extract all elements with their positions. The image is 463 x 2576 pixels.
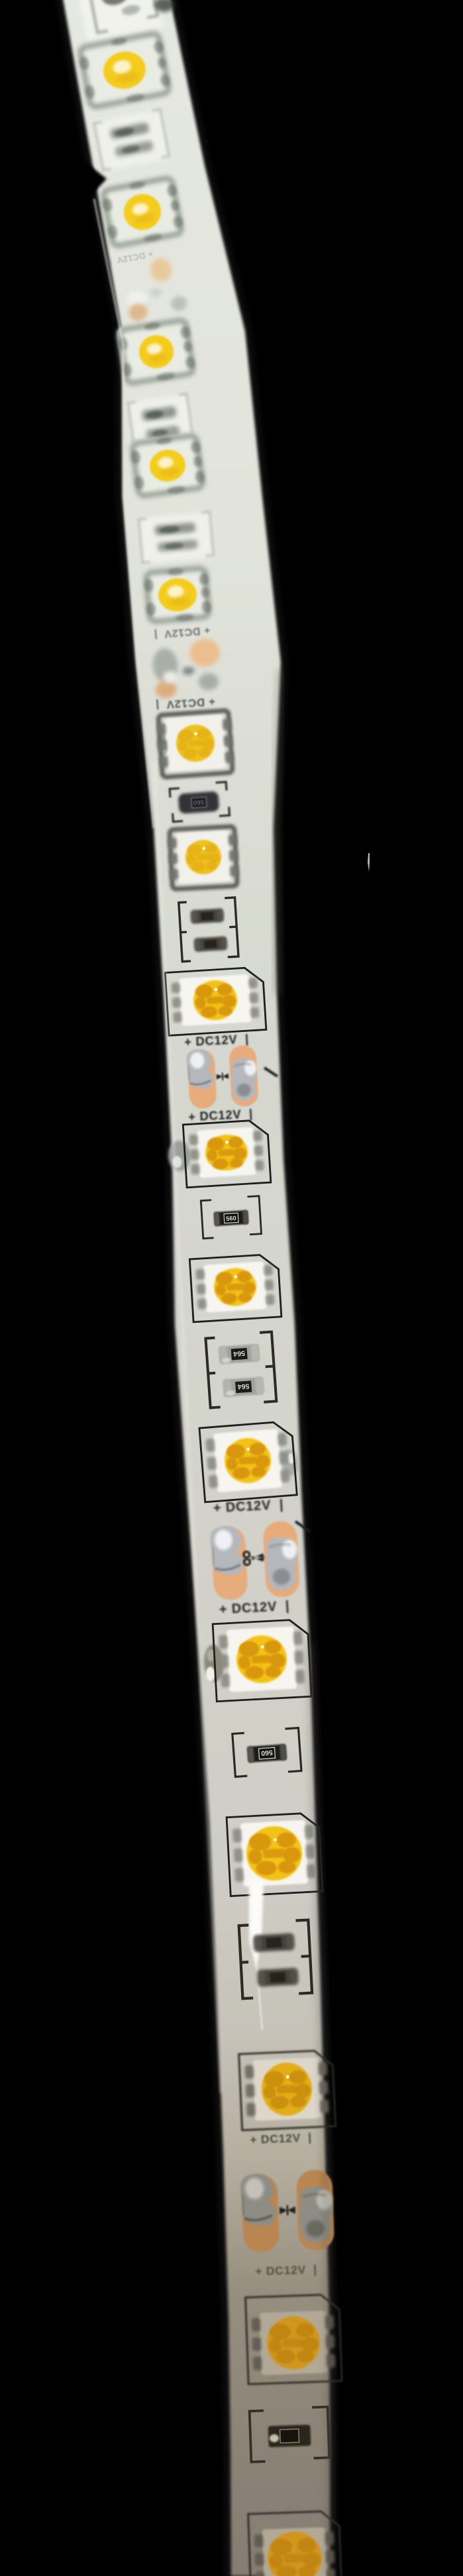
svg-text:+ DC12V |: + DC12V | — [250, 2131, 312, 2147]
svg-text:564: 564 — [233, 1349, 245, 1358]
svg-text:560: 560 — [261, 1748, 273, 1757]
svg-text:560: 560 — [226, 1215, 236, 1222]
svg-text:564: 564 — [237, 1382, 249, 1390]
svg-text:+ DC12V |: + DC12V | — [255, 2263, 317, 2278]
svg-text:560: 560 — [193, 798, 204, 806]
